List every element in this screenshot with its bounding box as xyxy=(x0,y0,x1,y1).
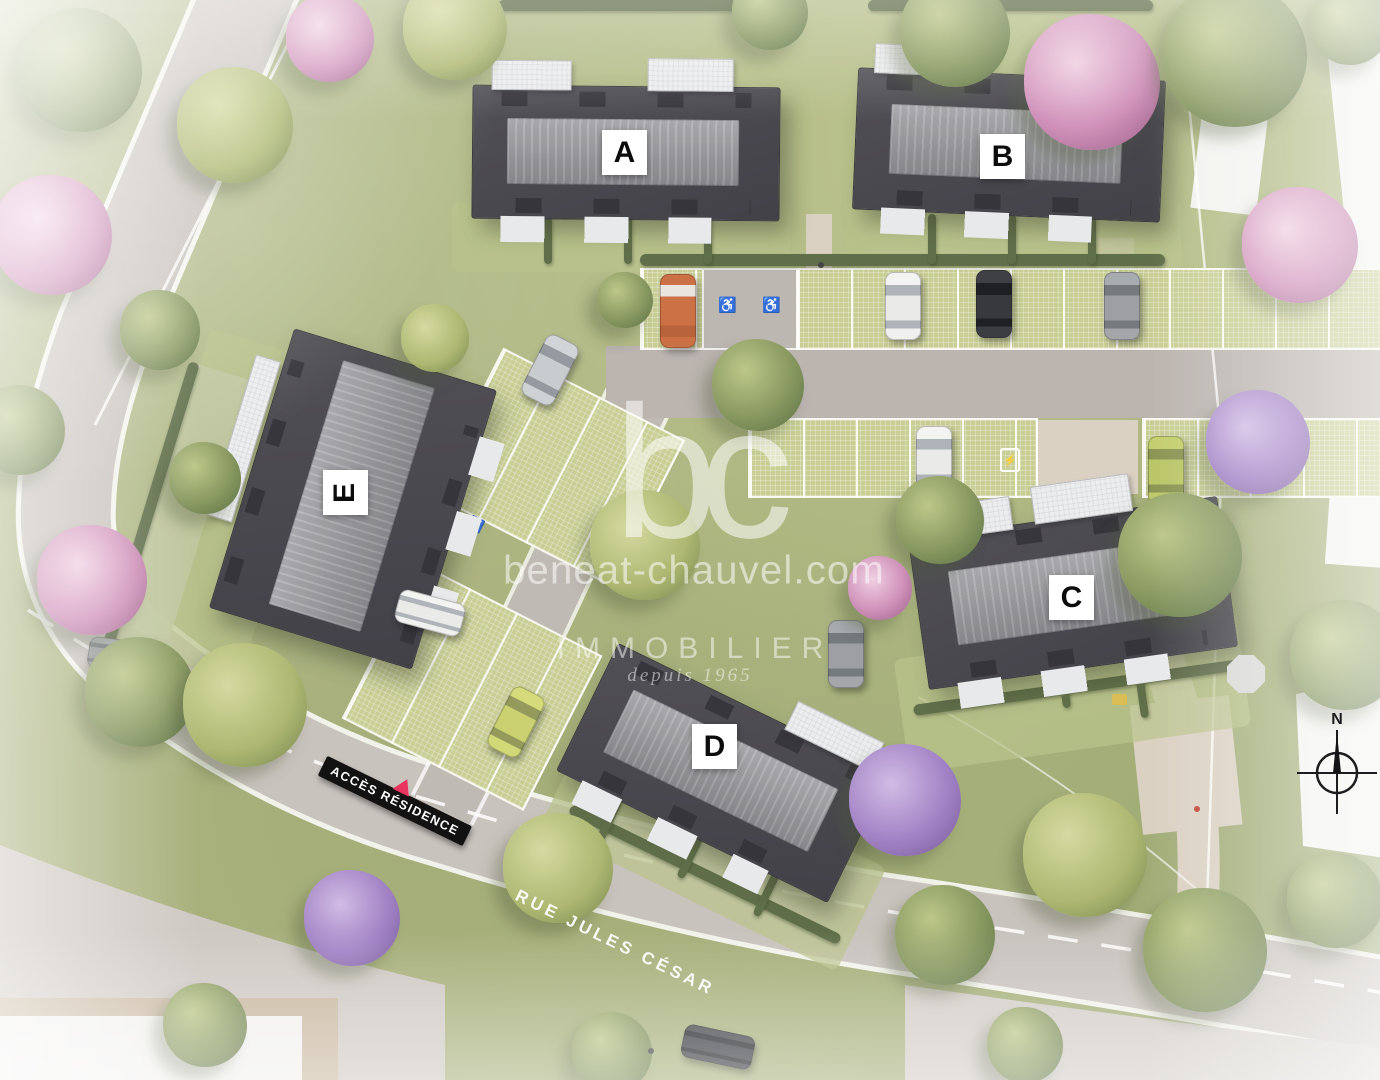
tree xyxy=(1023,793,1147,917)
person xyxy=(648,1048,654,1054)
balconies xyxy=(500,216,711,244)
compass-north-label: N xyxy=(1331,711,1343,728)
hedge-row xyxy=(498,0,763,11)
tree xyxy=(120,290,200,370)
tree xyxy=(896,476,984,564)
neighbor-shed xyxy=(1190,112,1267,215)
car xyxy=(828,620,864,688)
car xyxy=(976,270,1012,338)
building-letter: A xyxy=(614,136,636,170)
tree xyxy=(1143,888,1267,1012)
hedge-row xyxy=(640,254,1165,266)
compass-rose: N xyxy=(1272,702,1380,832)
tree xyxy=(18,8,142,132)
neighbor-parcel-bottom-left xyxy=(0,1016,302,1080)
tree xyxy=(1206,390,1310,494)
tree xyxy=(183,643,307,767)
parking-row-south-west xyxy=(748,418,1038,498)
agency-tagline-watermark: depuis 1965 xyxy=(627,665,752,687)
tree xyxy=(1118,493,1242,617)
tree xyxy=(177,67,293,183)
tree xyxy=(85,637,195,747)
building-label-d: D xyxy=(692,724,737,769)
agency-logo-watermark: bc xyxy=(614,378,775,566)
building-label-c: C xyxy=(1049,575,1094,620)
tree xyxy=(895,885,995,985)
car xyxy=(660,274,696,348)
building-label-b: B xyxy=(980,134,1025,179)
dormers xyxy=(501,91,752,108)
site-plan-aerial-view: ♿ ♿ ♿ ⚡ xyxy=(0,0,1380,1080)
building-label-e: E xyxy=(323,470,368,515)
tree xyxy=(304,870,400,966)
tree xyxy=(169,442,241,514)
dormers xyxy=(515,198,751,215)
car xyxy=(885,272,921,340)
building-letter: D xyxy=(704,730,726,764)
agency-brand-watermark: IMMOBILIER xyxy=(547,632,834,666)
wheelchair-icon: ♿ xyxy=(718,298,737,313)
person xyxy=(818,262,824,268)
car xyxy=(1104,272,1140,340)
tree xyxy=(1024,14,1160,150)
roof-terrace xyxy=(648,58,734,92)
tree xyxy=(597,272,653,328)
wheelchair-icon: ♿ xyxy=(762,298,781,313)
tree xyxy=(286,0,374,82)
agency-website-watermark: beneat-chauvel.com xyxy=(503,549,885,594)
ev-charging-icon: ⚡ xyxy=(1000,448,1020,472)
tree xyxy=(849,744,961,856)
ev-charging-glyph: ⚡ xyxy=(1003,454,1017,467)
building-label-a: A xyxy=(602,130,647,175)
tree xyxy=(401,304,469,372)
building-letter: B xyxy=(992,140,1014,174)
roof-terrace xyxy=(492,60,572,91)
building-letter: C xyxy=(1061,581,1083,615)
building-letter: E xyxy=(328,482,362,502)
tree xyxy=(1287,852,1380,948)
person xyxy=(1194,806,1200,812)
accessible-parking-stalls xyxy=(702,268,800,350)
tree xyxy=(163,983,247,1067)
tree xyxy=(37,525,147,635)
tree xyxy=(1242,187,1358,303)
picnic-table xyxy=(1112,694,1127,705)
tree xyxy=(987,1007,1063,1080)
